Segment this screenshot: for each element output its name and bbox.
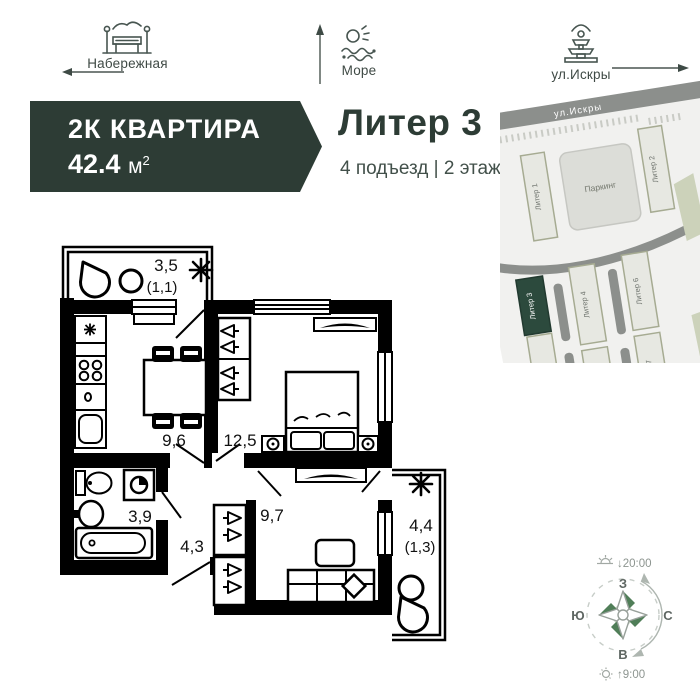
compass-south: Ю bbox=[571, 608, 584, 623]
sunrise-time: ↑9:00 bbox=[617, 669, 645, 681]
balcony-chair bbox=[80, 262, 109, 297]
compass-west: З bbox=[619, 576, 627, 591]
room-label-balcony-top: 3,5 bbox=[154, 256, 178, 275]
room-label-balcony-right-reduced: (1,3) bbox=[405, 539, 436, 556]
sea-icon bbox=[338, 25, 380, 63]
room-label-balcony-top-reduced: (1,1) bbox=[147, 279, 178, 296]
apartment-banner: 2К КВАРТИРА 42.4 м2 bbox=[30, 101, 322, 192]
landmark-label-sea: Море bbox=[330, 63, 388, 78]
bed bbox=[262, 372, 378, 452]
toilet bbox=[76, 471, 112, 495]
coffee-table bbox=[316, 540, 354, 566]
entrance-floor-label: 4 подъезд | 2 этаж bbox=[340, 158, 501, 180]
compass-arc-arrowhead bbox=[632, 649, 644, 657]
kitchen-units bbox=[75, 316, 106, 448]
bathtub bbox=[76, 528, 152, 558]
room-label-bathroom: 3,9 bbox=[128, 507, 152, 526]
sofa bbox=[288, 570, 374, 602]
compass: ↓20:00 З Ю С В ↑9:00 bbox=[548, 552, 698, 687]
fountain-icon bbox=[559, 22, 603, 66]
apartment-area: 42.4 м2 bbox=[68, 149, 322, 180]
building-title: Литер 3 bbox=[338, 102, 482, 144]
wardrobe-bedroom bbox=[218, 318, 250, 400]
bench-icon bbox=[93, 19, 161, 57]
room-label-bedroom: 12,5 bbox=[223, 431, 256, 450]
ac-unit-icon bbox=[190, 259, 212, 281]
sunset-icon bbox=[597, 555, 613, 564]
sunrise-icon bbox=[600, 668, 613, 681]
balcony-chair bbox=[398, 597, 427, 632]
room-label-living: 9,7 bbox=[260, 506, 284, 525]
arrow-right-icon bbox=[610, 62, 690, 74]
compass-north: С bbox=[663, 608, 673, 623]
room-label-balcony-right: 4,4 bbox=[409, 516, 433, 535]
sunset-time: ↓20:00 bbox=[617, 558, 652, 570]
washing-machine bbox=[124, 470, 154, 500]
ac-unit-icon bbox=[410, 473, 432, 495]
site-map-parking[interactable]: Паркинг bbox=[559, 143, 642, 231]
room-label-hallway: 4,3 bbox=[180, 537, 204, 556]
room-label-kitchen: 9,6 bbox=[162, 431, 186, 450]
compass-east: В bbox=[618, 647, 627, 662]
page: Набережная Море ул.Искры bbox=[0, 0, 700, 700]
floor-plan: 3,5 (1,1) 9,6 12,5 3,9 4,3 9,7 4,4 (1,3) bbox=[55, 235, 455, 660]
site-map: ул.Искры Литер 1 Паркинг Литер 2 bbox=[500, 78, 700, 363]
dining-table bbox=[144, 346, 206, 429]
arrow-up-icon bbox=[314, 24, 326, 86]
arrow-left-icon bbox=[62, 66, 126, 78]
tv-stand-living bbox=[296, 468, 366, 482]
balcony-table bbox=[120, 270, 142, 292]
dresser-bedroom bbox=[314, 318, 376, 331]
nightstand bbox=[358, 436, 378, 452]
compass-center bbox=[618, 610, 628, 620]
nightstand bbox=[262, 436, 284, 452]
apartment-type: 2К КВАРТИРА bbox=[68, 114, 322, 145]
wardrobe-hallway bbox=[214, 505, 246, 605]
fridge-icon bbox=[84, 324, 96, 336]
bathroom-sink bbox=[74, 501, 103, 527]
